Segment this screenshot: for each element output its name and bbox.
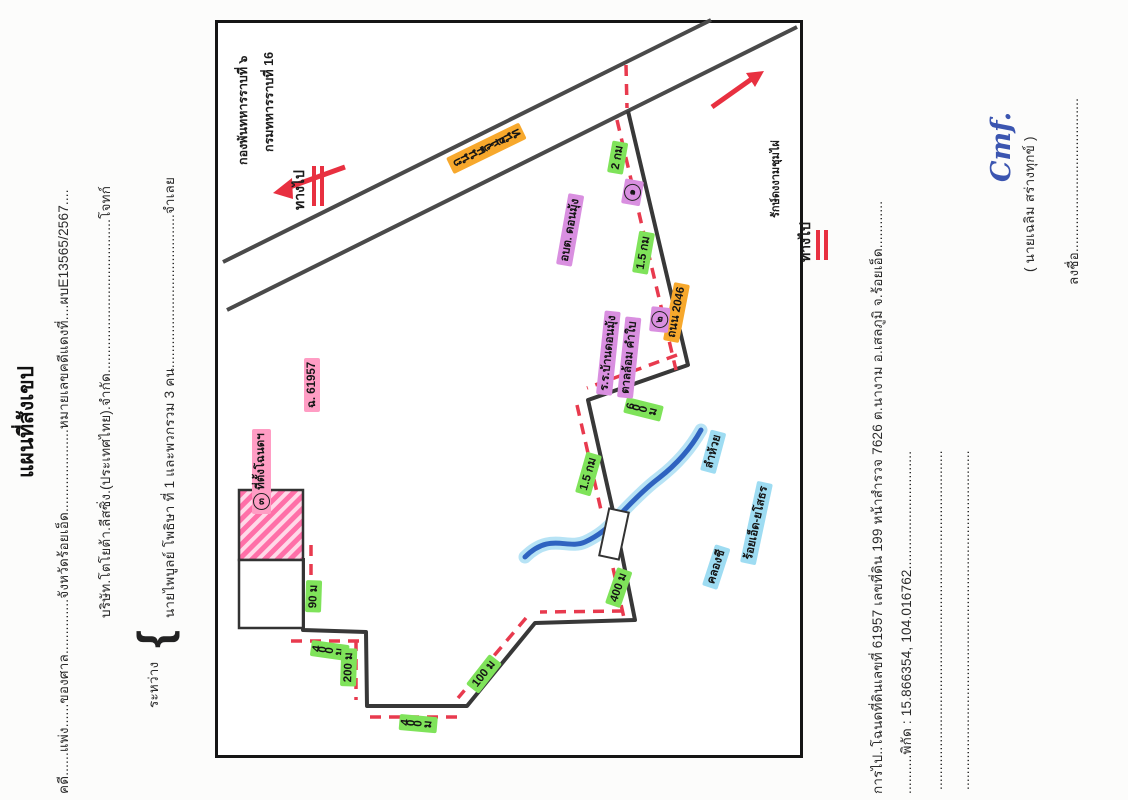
circled-number-3-icon: ๓ <box>253 493 270 510</box>
brace-symbol: { <box>126 630 184 648</box>
destination-deed-line: การไป..โฉนดที่ดินเลขที่ 61957 เลขที่ดิน … <box>870 201 887 794</box>
bridge <box>599 508 629 559</box>
sign-here-line: ลงชื่อ..................................… <box>1066 98 1083 285</box>
between-label: ระหว่าง <box>146 662 163 708</box>
plot-label-line1-text: ที่ตั้งโฉนดฯ <box>255 433 267 489</box>
go-to-label-2: ทางไป <box>797 222 815 262</box>
red-underline-1b <box>320 166 324 206</box>
destination-1-line2: กรมทหารราบที่ 16 <box>262 52 278 152</box>
case-number-line: คดี......แพ่ง......ของศาล..............จ… <box>56 189 73 794</box>
destination-2-label: รักษ์ดงงามชุมไผ่ <box>770 140 784 218</box>
red-underline-1a <box>312 166 316 206</box>
go-to-label-1: ทางไป <box>291 170 309 210</box>
plot-parcel-empty <box>239 560 303 628</box>
signature: Cmf. <box>985 112 1019 182</box>
circled-number-1-icon: ๑ <box>623 182 643 202</box>
waypoint-marker-2: ๒ <box>649 306 671 333</box>
arrow-left-icon <box>273 167 345 199</box>
red-underline-2b <box>824 230 828 260</box>
destination-1-line1: กองพันทหารราบที่ ๖ <box>236 56 252 166</box>
plot-label-line1: ๓ ที่ตั้งโฉนดฯ <box>252 429 271 514</box>
plaintiff-line: บริษัท.โตโยต้า.ลีสซิ่ง.(ประเทศไทย).จำกัด… <box>98 186 115 618</box>
page-title: แผนที่สังเขป <box>14 366 40 478</box>
distance-seg8: 400 ม <box>399 714 438 733</box>
coordinates-line: ..........พิกัด : 15.866354, 104.016762.… <box>899 451 916 794</box>
circled-number-2-icon: ๒ <box>650 310 669 329</box>
defendant-line: นายไพบูลย์ โพธิษา ที่ 1 และพวกรวม 3 คน..… <box>162 177 179 618</box>
dotted-line-1: ........................................… <box>930 450 947 790</box>
distance-seg10: 90 ม <box>305 580 322 612</box>
red-underline-2a <box>816 230 820 260</box>
distance-seg7: 200 ม <box>340 648 358 687</box>
plot-parcel-hatched <box>239 490 303 560</box>
dotted-line-2: ........................................… <box>957 450 974 790</box>
signer-name: ( นายเฉลิม สร่างทุกข์ ) <box>1022 136 1039 272</box>
main-road-line-upper <box>223 20 711 262</box>
plot-label-line2: ฉ. 61957 <box>304 358 320 412</box>
arrow-right-icon <box>712 71 764 107</box>
